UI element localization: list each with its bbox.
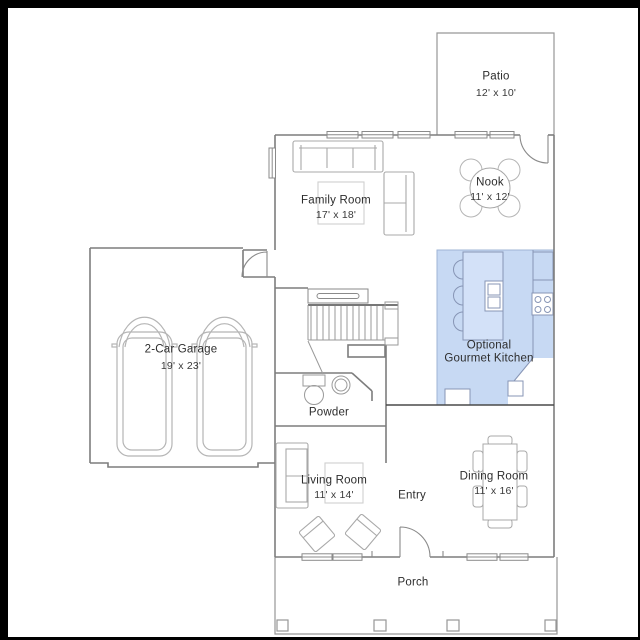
car-mirror [252,344,257,347]
car-mirror [112,344,117,347]
stair-treads [311,306,383,340]
car-hood-arc [125,324,164,347]
optional-gourmet-kitchen [437,250,554,405]
pantry-cabinet [508,381,523,396]
fireplace-insert [317,294,359,299]
dining-chair [517,451,527,472]
garage-cars [112,317,257,456]
stair-closet [348,345,385,357]
family-loveseat-cushions [384,175,406,232]
toilet-bowl [305,386,324,405]
nook-table [470,168,510,208]
family-room-rug [318,182,364,224]
floorplan-image: Patio 12' x 10' Nook 11' x 12' Family Ro… [0,0,640,640]
car-mirror [172,344,177,347]
dining-chair [473,451,483,472]
powder-wall-angled [352,373,372,401]
family-sofa-cushions [299,145,377,170]
stair-newel [385,338,398,345]
wall-ticks [372,551,443,557]
car-mirror [192,344,197,347]
dining-chair [517,486,527,507]
porch-outline [275,557,557,634]
patio-door [520,135,548,163]
fireplace [308,289,368,303]
living-chair [345,514,382,551]
car-outline-inner [203,338,246,450]
nook-furniture [460,159,520,217]
front-entry-door [400,527,430,557]
porch-post [545,620,556,631]
dining-chair [473,486,483,507]
car-hood-arc [205,324,244,347]
plan-drawing [0,0,640,640]
car-outline [197,332,252,456]
toilet-tank [303,375,325,386]
dining-table [483,444,517,520]
porch-post [447,620,459,631]
garage-door [242,251,267,277]
mudroom-walls [243,250,275,277]
family-sofa [293,141,383,172]
car-outline [117,332,172,456]
porch-post [277,620,288,631]
dining-furniture [473,436,527,528]
powder-room [303,375,350,405]
patio-walls [437,33,554,135]
staircase [308,302,398,374]
living-chair [299,516,336,553]
garage-wall-bottom [90,463,275,467]
kitchen-base-cabinet [445,389,470,405]
family-room-furniture [293,141,414,235]
porch-post [374,620,386,631]
powder-sink-basin [335,379,347,391]
car-outline-inner [123,338,166,450]
living-room-furniture [276,443,381,552]
living-room-rug [325,463,363,503]
